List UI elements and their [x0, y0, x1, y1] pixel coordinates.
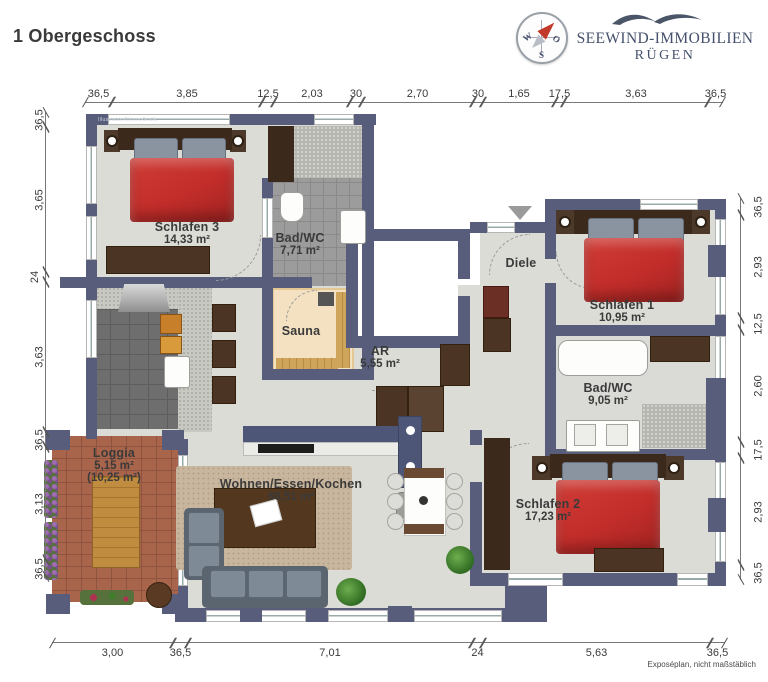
plant: [336, 578, 366, 606]
room-label-loggia: Loggia 5,15 m² (10,25 m²): [87, 446, 141, 484]
window-pier: [240, 606, 262, 622]
window: [86, 300, 97, 358]
dim-top: 12,5: [262, 88, 274, 103]
room-label-schlafen3: Schlafen 3 14,33 m²: [155, 220, 220, 246]
loggia-pier: [46, 430, 70, 450]
dim-top: 30: [350, 88, 362, 103]
dining-chair: [387, 493, 404, 510]
window: [677, 573, 708, 586]
wall-schlafen1-south: [545, 325, 726, 336]
dining-table-end: [404, 468, 444, 478]
dim-left: 3,13: [45, 447, 46, 560]
cooktop-pan: [160, 314, 182, 334]
bed-schlafen1: [584, 238, 684, 302]
kitchen-sink: [164, 356, 190, 388]
loggia-table: [92, 476, 140, 568]
window: [640, 199, 698, 210]
bathtub: [558, 340, 648, 376]
compass-icon: W O S: [516, 12, 568, 64]
tv-wall-unit: [243, 426, 413, 442]
logo-text: SEEWIND-IMMOBILIEN RÜGEN: [572, 6, 758, 64]
window: [314, 114, 354, 125]
dining-chair: [446, 493, 463, 510]
dim-left: 3,63: [45, 282, 46, 432]
logo-line2: RÜGEN: [572, 48, 758, 64]
nightstand: [664, 456, 684, 480]
door: [262, 198, 273, 238]
scale-disclaimer: Exposéplan, nicht maßstäblich: [648, 660, 757, 669]
sideboard: [594, 548, 664, 572]
wall-bad2-west: [545, 325, 556, 460]
sauna-heater: [318, 292, 334, 306]
compass-east-label: O: [551, 33, 562, 45]
room-label-diele: Diele: [506, 256, 537, 270]
dim-top: 3,85: [112, 88, 262, 103]
dim-top: 17,5: [555, 88, 564, 103]
dim-right: 2,60: [740, 330, 741, 442]
window-pier: [708, 245, 726, 277]
wall-schlafen2-west: [470, 430, 482, 445]
room-label-wohnen: Wohnen/Essen/Kochen 60,51 m²: [220, 477, 362, 503]
dim-top: 2,70: [362, 88, 473, 103]
dining-table-end: [404, 524, 444, 534]
illustration-watermark: Illustration©ImmoGrafik: [98, 117, 157, 123]
sink: [574, 424, 596, 446]
flower-box: [80, 590, 134, 605]
window: [508, 573, 563, 586]
sofa-cushion: [248, 570, 284, 598]
dim-right: 2,93: [740, 215, 741, 318]
nightstand: [230, 130, 246, 152]
sideboard: [106, 246, 210, 274]
sofa-cushion: [188, 512, 220, 544]
room-label-bad2: Bad/WC 9,05 m²: [583, 381, 632, 407]
storage-cabinet: [440, 344, 470, 386]
logo-line1: SEEWIND-IMMOBILIEN: [572, 30, 758, 48]
hall-cabinet: [483, 318, 511, 352]
wall-stair-east: [458, 229, 470, 279]
plant: [446, 546, 474, 574]
room-label-schlafen2: Schlafen 2 17,23 m²: [516, 497, 581, 523]
entry-arrow-icon: [508, 206, 532, 220]
sink: [606, 424, 628, 446]
flower-box: [44, 460, 58, 518]
room-label-bad1: Bad/WC 7,71 m²: [275, 231, 324, 257]
bath-cabinet: [650, 336, 710, 362]
company-logo: W O S SEEWIND-IMMOBILIEN RÜGEN: [510, 6, 760, 66]
bar-stool: [212, 376, 236, 404]
cooktop-pan: [160, 336, 182, 354]
room-label-schlafen1: Schlafen 1 10,95 m²: [590, 298, 655, 324]
window-pier: [706, 378, 726, 450]
room-label-ar: AR 5,55 m²: [360, 344, 400, 370]
bar-stool: [212, 340, 236, 368]
dim-bottom: 3,00: [52, 642, 173, 643]
wardrobe: [268, 126, 294, 182]
dim-right: 36,5: [740, 565, 741, 580]
compass-south-label: S: [539, 50, 544, 60]
dim-left: 3,65: [45, 127, 46, 272]
dining-chair: [387, 473, 404, 490]
table-decor: [419, 496, 428, 505]
dim-bottom: 7,01: [188, 642, 472, 643]
bar-stool: [212, 304, 236, 332]
dim-top: 36,5: [85, 88, 112, 103]
window: [86, 146, 97, 204]
washbasin: [340, 210, 366, 244]
window-pier: [708, 498, 726, 532]
wall-wing-north: [549, 199, 726, 210]
dim-bottom: 36,5: [173, 642, 188, 643]
dim-bottom: 5,63: [483, 642, 710, 643]
dim-top: 2,03: [274, 88, 350, 103]
page-title: 1 Obergeschoss: [13, 26, 156, 47]
bathroom2-shower-tiles: [642, 404, 708, 448]
window-pier: [388, 606, 412, 622]
window: [414, 610, 502, 622]
toilet: [280, 192, 304, 222]
nightstand: [692, 210, 710, 234]
dim-top: 30: [473, 88, 483, 103]
sofa-cushion: [286, 570, 322, 598]
shelf-knob: [406, 426, 415, 435]
loggia-pier: [162, 430, 184, 450]
floorplan-page: 1 Obergeschoss W O S SEEWIND-IMMOBILIEN …: [0, 0, 768, 682]
dining-chair: [387, 513, 404, 530]
dim-bottom: 36,5: [710, 642, 725, 643]
entry-door: [487, 222, 515, 233]
extractor-hood: [118, 284, 170, 312]
wall-schlafen1-west: [545, 199, 556, 259]
flower-box: [44, 522, 58, 580]
side-table: [146, 582, 172, 608]
window: [86, 216, 97, 260]
dining-chair: [446, 513, 463, 530]
loggia-pier: [46, 594, 70, 614]
bed-schlafen3: [130, 158, 234, 222]
wardrobe: [484, 438, 510, 570]
dim-bottom: 24: [472, 642, 483, 643]
room-label-sauna: Sauna: [282, 324, 321, 338]
hall-cabinet: [483, 286, 509, 318]
seagull-icon: [610, 8, 720, 30]
dim-top: 1,65: [483, 88, 555, 103]
wall-sauna-south: [262, 369, 374, 380]
dim-top: 3,63: [564, 88, 708, 103]
sofa-cushion: [210, 570, 246, 598]
nightstand: [556, 210, 574, 234]
dim-left: 36,5: [45, 560, 46, 577]
tv: [258, 444, 314, 453]
dim-top: 36,5: [708, 88, 723, 103]
wall-schlafen3-south: [60, 277, 312, 288]
window: [328, 610, 388, 622]
dim-right: 2,93: [740, 458, 741, 565]
wall-stair-west: [346, 229, 358, 348]
dining-chair: [446, 473, 463, 490]
nightstand: [532, 456, 552, 480]
